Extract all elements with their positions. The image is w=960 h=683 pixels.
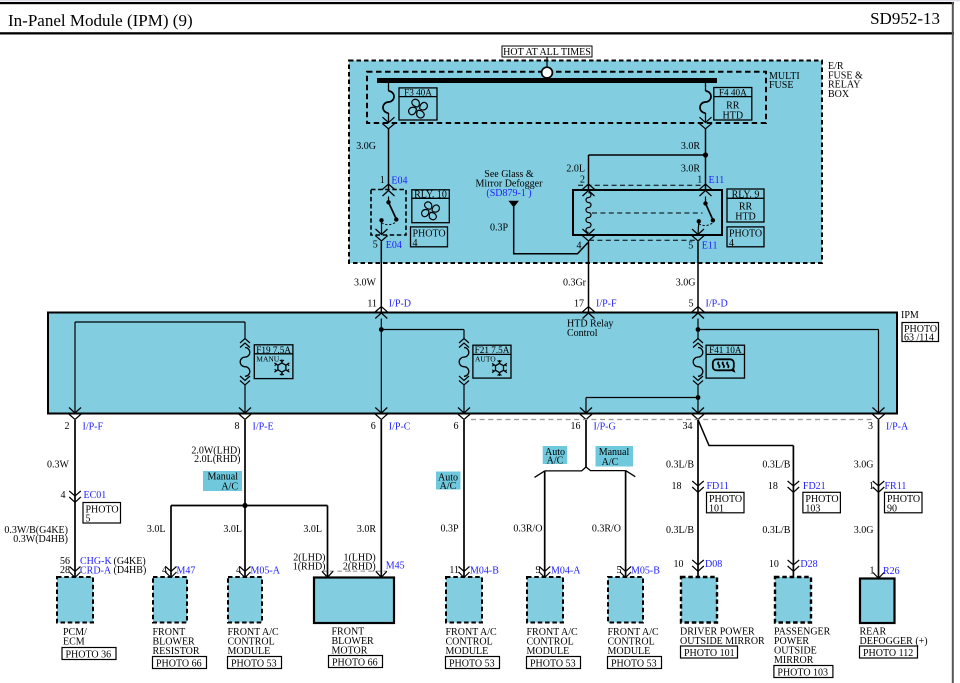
svg-text:103: 103 xyxy=(805,503,820,514)
svg-text:2: 2 xyxy=(580,175,585,186)
svg-text:SD952-13: SD952-13 xyxy=(870,9,940,28)
svg-text:EC01: EC01 xyxy=(84,490,107,501)
svg-text:0.3L/B: 0.3L/B xyxy=(762,460,790,471)
svg-text:3.0R: 3.0R xyxy=(357,524,377,535)
svg-text:MODULE: MODULE xyxy=(228,646,271,657)
svg-text:BOX: BOX xyxy=(828,89,850,100)
svg-text:10: 10 xyxy=(674,559,684,570)
svg-text:3.0G: 3.0G xyxy=(676,278,696,289)
svg-text:5: 5 xyxy=(688,240,693,251)
svg-text:F3 40A: F3 40A xyxy=(404,88,432,98)
svg-text:MODULE: MODULE xyxy=(608,646,651,657)
svg-text:HTD: HTD xyxy=(735,212,756,223)
svg-text:IPM: IPM xyxy=(901,310,919,321)
svg-text:0.3R/O: 0.3R/O xyxy=(513,524,542,535)
svg-text:I/P-C: I/P-C xyxy=(389,421,411,432)
svg-text:MODULE: MODULE xyxy=(527,646,570,657)
svg-text:A/C: A/C xyxy=(547,456,564,467)
svg-text:MODULE: MODULE xyxy=(446,646,489,657)
svg-text:101: 101 xyxy=(709,503,724,514)
svg-text:M04-A: M04-A xyxy=(551,565,581,576)
svg-text:0.3P: 0.3P xyxy=(490,222,509,233)
svg-text:D08: D08 xyxy=(705,559,722,570)
svg-text:R26: R26 xyxy=(883,566,900,577)
svg-text:A/C: A/C xyxy=(221,481,238,492)
svg-text:0.3L/B: 0.3L/B xyxy=(666,460,694,471)
svg-text:FR11: FR11 xyxy=(885,481,907,492)
svg-text:MANU: MANU xyxy=(256,354,280,363)
svg-text:0.3L/B: 0.3L/B xyxy=(762,525,790,536)
svg-text:A/C: A/C xyxy=(602,457,619,468)
svg-text:90: 90 xyxy=(887,503,897,514)
svg-text:1(RHD): 1(RHD) xyxy=(293,562,326,573)
svg-text:11: 11 xyxy=(367,298,377,309)
svg-text:PHOTO 101: PHOTO 101 xyxy=(684,648,735,659)
svg-text:I/P-F: I/P-F xyxy=(83,421,104,432)
svg-text:PHOTO 36: PHOTO 36 xyxy=(66,649,112,660)
svg-text:RLY. 9: RLY. 9 xyxy=(732,189,760,200)
svg-text:1: 1 xyxy=(380,175,385,186)
svg-text:4: 4 xyxy=(413,238,418,249)
svg-text:5: 5 xyxy=(689,298,694,309)
svg-text:HOT AT ALL TIMES: HOT AT ALL TIMES xyxy=(503,47,591,58)
svg-text:DEFOGGER (+): DEFOGGER (+) xyxy=(860,636,928,647)
svg-text:2.0L: 2.0L xyxy=(566,164,585,175)
svg-text:I/P-E: I/P-E xyxy=(253,421,274,432)
svg-text:3: 3 xyxy=(868,421,873,432)
svg-text:I/P-D: I/P-D xyxy=(389,299,411,310)
svg-text:M05-A: M05-A xyxy=(251,565,281,576)
svg-text:PHOTO 53: PHOTO 53 xyxy=(611,658,657,669)
svg-text:E11: E11 xyxy=(702,241,718,252)
svg-text:6: 6 xyxy=(371,421,376,432)
svg-text:A/C: A/C xyxy=(440,481,457,492)
svg-text:1: 1 xyxy=(870,566,875,577)
svg-text:3.0G: 3.0G xyxy=(854,460,874,471)
svg-text:M45: M45 xyxy=(386,561,405,572)
svg-text:RLY. 10: RLY. 10 xyxy=(414,189,447,200)
svg-text:3.0R: 3.0R xyxy=(681,141,701,152)
svg-text:3.0L: 3.0L xyxy=(147,524,166,535)
svg-text:4: 4 xyxy=(61,490,66,501)
svg-text:MIRROR: MIRROR xyxy=(774,655,814,666)
svg-text:(D4HB): (D4HB) xyxy=(114,565,147,576)
svg-text:F41 10A: F41 10A xyxy=(709,345,742,355)
svg-text:3.0G: 3.0G xyxy=(356,141,376,152)
svg-text:ECM: ECM xyxy=(63,637,85,648)
svg-text:F19 7.5A: F19 7.5A xyxy=(256,345,291,355)
svg-text:11: 11 xyxy=(449,565,459,576)
svg-text:PHOTO 53: PHOTO 53 xyxy=(231,658,277,669)
svg-text:63 /114: 63 /114 xyxy=(904,333,934,344)
svg-text:3.0G: 3.0G xyxy=(854,525,874,536)
svg-text:3.0L: 3.0L xyxy=(303,524,322,535)
svg-text:AUTO: AUTO xyxy=(475,355,496,364)
svg-text:OUTSIDE MIRROR: OUTSIDE MIRROR xyxy=(680,636,765,647)
svg-text:Control: Control xyxy=(567,328,598,339)
svg-text:0.3P: 0.3P xyxy=(440,524,459,535)
svg-text:PHOTO 66: PHOTO 66 xyxy=(156,658,202,669)
svg-text:E11: E11 xyxy=(709,175,725,186)
svg-text:6: 6 xyxy=(454,421,459,432)
svg-text:17: 17 xyxy=(574,298,584,309)
svg-text:3.0L: 3.0L xyxy=(223,524,242,535)
svg-text:10: 10 xyxy=(769,559,779,570)
svg-text:0.3L/B: 0.3L/B xyxy=(666,525,694,536)
svg-text:FUSE: FUSE xyxy=(769,80,793,91)
svg-text:F4 40A: F4 40A xyxy=(719,88,747,98)
svg-text:PHOTO 66: PHOTO 66 xyxy=(332,657,378,668)
svg-text:M04-B: M04-B xyxy=(470,565,499,576)
svg-text:0.3W(D4HB): 0.3W(D4HB) xyxy=(13,534,68,545)
svg-text:5: 5 xyxy=(373,240,378,251)
svg-text:16: 16 xyxy=(571,421,581,432)
svg-text:I/P-A: I/P-A xyxy=(886,421,909,432)
svg-text:I/P-G: I/P-G xyxy=(594,421,616,432)
svg-text:4: 4 xyxy=(577,240,582,251)
svg-text:E04: E04 xyxy=(391,176,407,187)
svg-text:HTD: HTD xyxy=(723,110,744,121)
svg-text:2.0L(RHD): 2.0L(RHD) xyxy=(194,454,240,465)
svg-text:18: 18 xyxy=(672,481,682,492)
svg-text:(SD879-1 ): (SD879-1 ) xyxy=(486,188,531,199)
svg-text:PHOTO 53: PHOTO 53 xyxy=(530,658,576,669)
svg-text:0.3W: 0.3W xyxy=(47,460,70,471)
svg-text:MOTOR: MOTOR xyxy=(332,645,368,656)
svg-text:1: 1 xyxy=(697,175,702,186)
svg-text:In-Panel Module (IPM) (9): In-Panel Module (IPM) (9) xyxy=(8,11,193,30)
svg-text:RESISTOR: RESISTOR xyxy=(153,646,200,657)
svg-text:2: 2 xyxy=(65,421,70,432)
svg-text:0.3Gr: 0.3Gr xyxy=(563,278,587,289)
svg-text:I/P-F: I/P-F xyxy=(596,299,617,310)
svg-text:4: 4 xyxy=(729,238,734,249)
svg-text:I/P-D: I/P-D xyxy=(706,299,728,310)
svg-text:PHOTO 103: PHOTO 103 xyxy=(777,667,828,678)
svg-text:D28: D28 xyxy=(800,559,817,570)
svg-text:CRD-A: CRD-A xyxy=(80,565,112,576)
svg-text:3.0R: 3.0R xyxy=(681,164,701,175)
svg-text:FD21: FD21 xyxy=(803,481,826,492)
svg-text:FD11: FD11 xyxy=(707,481,729,492)
svg-text:34: 34 xyxy=(683,421,693,432)
svg-text:PHOTO 112: PHOTO 112 xyxy=(863,648,913,659)
svg-text:28: 28 xyxy=(60,565,70,576)
svg-text:M47: M47 xyxy=(177,565,196,576)
svg-text:3.0W: 3.0W xyxy=(354,278,377,289)
svg-text:5: 5 xyxy=(86,514,91,525)
svg-text:18: 18 xyxy=(768,481,778,492)
svg-text:M05-B: M05-B xyxy=(631,565,660,576)
svg-text:1: 1 xyxy=(869,481,874,492)
svg-text:0.3R/O: 0.3R/O xyxy=(592,524,621,535)
svg-text:PHOTO 53: PHOTO 53 xyxy=(449,658,495,669)
svg-text:8: 8 xyxy=(235,421,240,432)
svg-text:E04: E04 xyxy=(386,240,402,251)
